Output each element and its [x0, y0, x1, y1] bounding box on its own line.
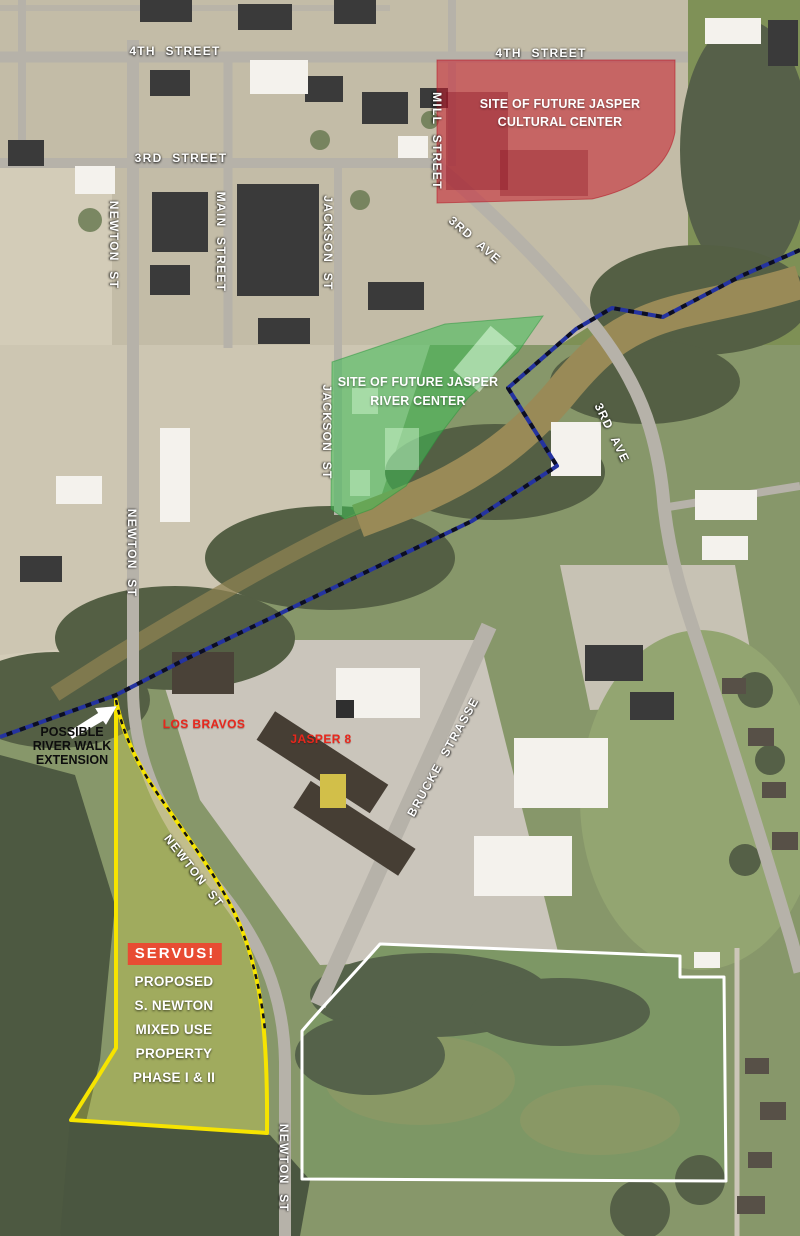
mixed-use-line5: PHASE I & II: [133, 1066, 215, 1090]
river-center-label-line1: SITE OF FUTURE JASPER: [338, 373, 498, 392]
mixed-use-property-label: PROPOSED S. NEWTON MIXED USE PROPERTY PH…: [133, 970, 215, 1090]
river-walk-extension-line2: RIVER WALK: [33, 739, 111, 753]
cultural-center-label-line1: SITE OF FUTURE JASPER: [480, 95, 640, 113]
mixed-use-line1: PROPOSED: [133, 970, 215, 994]
river-center-label: SITE OF FUTURE JASPER RIVER CENTER: [338, 373, 498, 411]
aerial-map: 4TH STREET 4TH STREET 3RD STREET MILL ST…: [0, 0, 800, 1236]
river-walk-extension-line3: EXTENSION: [33, 753, 111, 767]
river-center-label-line2: RIVER CENTER: [338, 392, 498, 411]
mixed-use-line3: MIXED USE: [133, 1018, 215, 1042]
satellite-base: [0, 0, 800, 1236]
mixed-use-line4: PROPERTY: [133, 1042, 215, 1066]
river-walk-extension-line1: POSSIBLE: [33, 725, 111, 739]
cultural-center-label: SITE OF FUTURE JASPER CULTURAL CENTER: [480, 95, 640, 131]
cultural-center-label-line2: CULTURAL CENTER: [480, 113, 640, 131]
river-walk-extension-label: POSSIBLE RIVER WALK EXTENSION: [33, 725, 111, 767]
cultural-center-overlay: [437, 60, 675, 203]
mixed-use-line2: S. NEWTON: [133, 994, 215, 1018]
